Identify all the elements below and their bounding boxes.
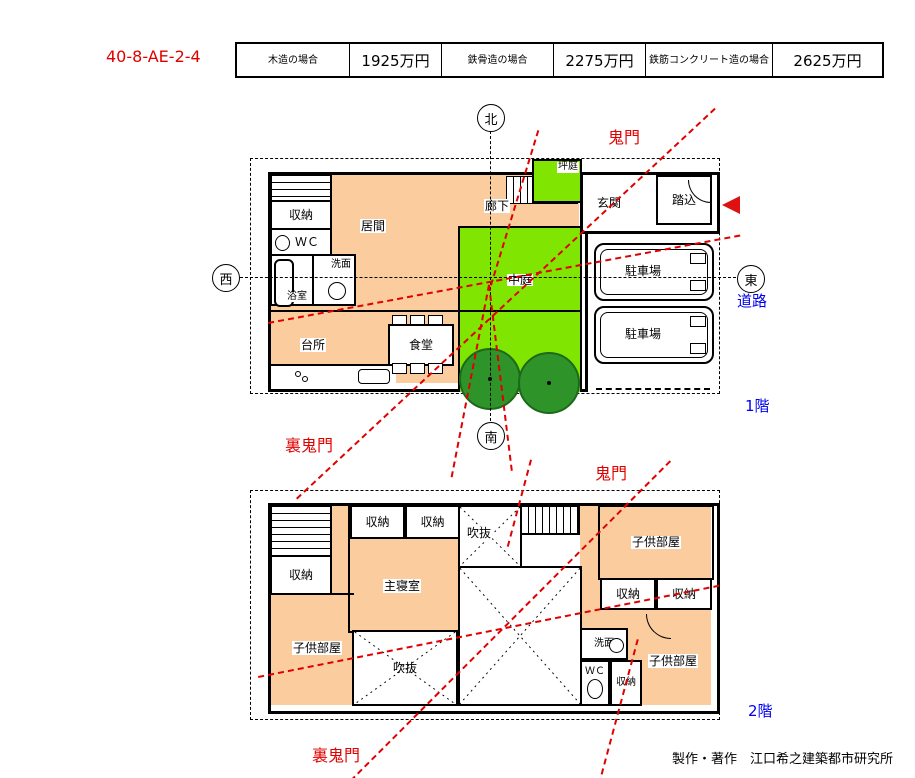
- burner-icon: [295, 371, 301, 377]
- cost-label-rc: 鉄筋コンクリート造の場合: [646, 44, 773, 76]
- room-void-top: 吹抜: [458, 505, 522, 568]
- burner-icon: [302, 376, 308, 382]
- entrance-marker-icon: [722, 196, 740, 214]
- floorplan-page: 40-8-AE-2-4 木造の場合 1925万円 鉄骨造の場合 2275万円 鉄…: [0, 0, 915, 778]
- compass-west: 西: [212, 264, 240, 292]
- cost-value-rc: 2625万円: [773, 44, 882, 76]
- plan-id: 40-8-AE-2-4: [106, 47, 201, 66]
- cost-label-steel: 鉄骨造の場合: [442, 44, 554, 76]
- stairs-top-f2: [520, 505, 580, 535]
- ura-kimon-label-f2: 裏鬼門: [312, 742, 360, 766]
- stairs-f1: [270, 174, 332, 202]
- room-child-right: 子供部屋: [648, 654, 698, 668]
- room-child-right-wrap: 子供部屋: [648, 650, 698, 669]
- room-dining: 食堂: [408, 339, 434, 352]
- cost-value-wood: 1925万円: [350, 44, 442, 76]
- car-icon-2: 駐車場: [594, 306, 714, 364]
- cost-label-wood: 木造の場合: [237, 44, 350, 76]
- car-window: [690, 280, 706, 291]
- kimon-label-f1: 鬼門: [608, 124, 640, 148]
- room-parking1: 駐車場: [624, 265, 662, 278]
- car-window: [690, 316, 706, 327]
- compass-south: 南: [477, 422, 505, 450]
- basin-icon-f2: [609, 638, 624, 653]
- road-label: 道路: [737, 290, 767, 311]
- ura-kimon-label-f1: 裏鬼門: [285, 432, 333, 456]
- room-child-left-wrap: 子供部屋: [292, 637, 342, 656]
- room-storage-c-f2: 収納: [600, 578, 656, 610]
- axis-east-west: [240, 277, 736, 278]
- room-living-label-wrap: 居間: [360, 215, 386, 234]
- parking-entry-dashes: [596, 388, 710, 390]
- credit-line: 製作・著作 江口希之建築都市研究所: [672, 748, 893, 767]
- tree-center-dot: [547, 381, 551, 385]
- room-storage-left-f2: 収納: [270, 555, 332, 595]
- room-storage-f1: 収納: [270, 200, 332, 230]
- tree-icon: [518, 352, 580, 414]
- room-parking2: 駐車場: [624, 328, 662, 341]
- basin-icon-f1: [328, 282, 346, 300]
- room-master-wrap: 主寝室: [383, 575, 421, 594]
- kitchen-counter: [271, 364, 396, 385]
- axis-north-south: [490, 131, 491, 421]
- room-void-courtyard: [458, 566, 582, 706]
- room-hall-label-wrap: 廊下: [484, 195, 510, 214]
- cost-value-steel: 2275万円: [554, 44, 646, 76]
- wall-kitchen-top: [270, 310, 580, 312]
- car-window: [690, 343, 706, 354]
- stairs-f2: [270, 505, 332, 557]
- room-child-left: 子供部屋: [292, 641, 342, 655]
- car-window: [690, 253, 706, 264]
- chair-icon: [392, 363, 407, 374]
- room-bath-f1: 浴室: [270, 254, 314, 306]
- room-kitchen-label-wrap: 台所: [300, 334, 326, 353]
- chair-icon: [410, 363, 425, 374]
- floor1-label: 1階: [745, 395, 770, 416]
- room-living: 居間: [360, 219, 386, 233]
- compass-east: 東: [737, 265, 765, 293]
- void-cross-lines: [354, 632, 456, 704]
- room-storage-a-f2: 収納: [350, 505, 405, 539]
- room-tsuboniwa: 坪庭: [532, 159, 582, 203]
- room-wc-f2: ＷＣ: [580, 660, 610, 706]
- toilet-icon-f1: [275, 235, 290, 251]
- room-storage-b-f2: 収納: [405, 505, 460, 539]
- room-washroom-f1: 洗面: [312, 254, 356, 306]
- room-child-top: 子供部屋: [631, 536, 681, 549]
- floor2-label: 2階: [748, 700, 773, 721]
- void-cross-lines: [460, 568, 580, 704]
- cost-table: 木造の場合 1925万円 鉄骨造の場合 2275万円 鉄筋コンクリート造の場合 …: [235, 42, 884, 78]
- compass-north: 北: [477, 104, 505, 132]
- room-kitchen: 台所: [300, 338, 326, 352]
- room-wc-f1: ＷＣ: [270, 228, 332, 256]
- room-master: 主寝室: [383, 579, 421, 593]
- sink-icon: [358, 369, 390, 384]
- room-washroom-f2: 洗面: [580, 628, 628, 660]
- kimon-label-f2: 鬼門: [595, 460, 627, 484]
- room-storage-d-f2: 収納: [656, 578, 712, 610]
- room-hall: 廊下: [484, 199, 510, 213]
- toilet-icon-f2: [587, 679, 603, 699]
